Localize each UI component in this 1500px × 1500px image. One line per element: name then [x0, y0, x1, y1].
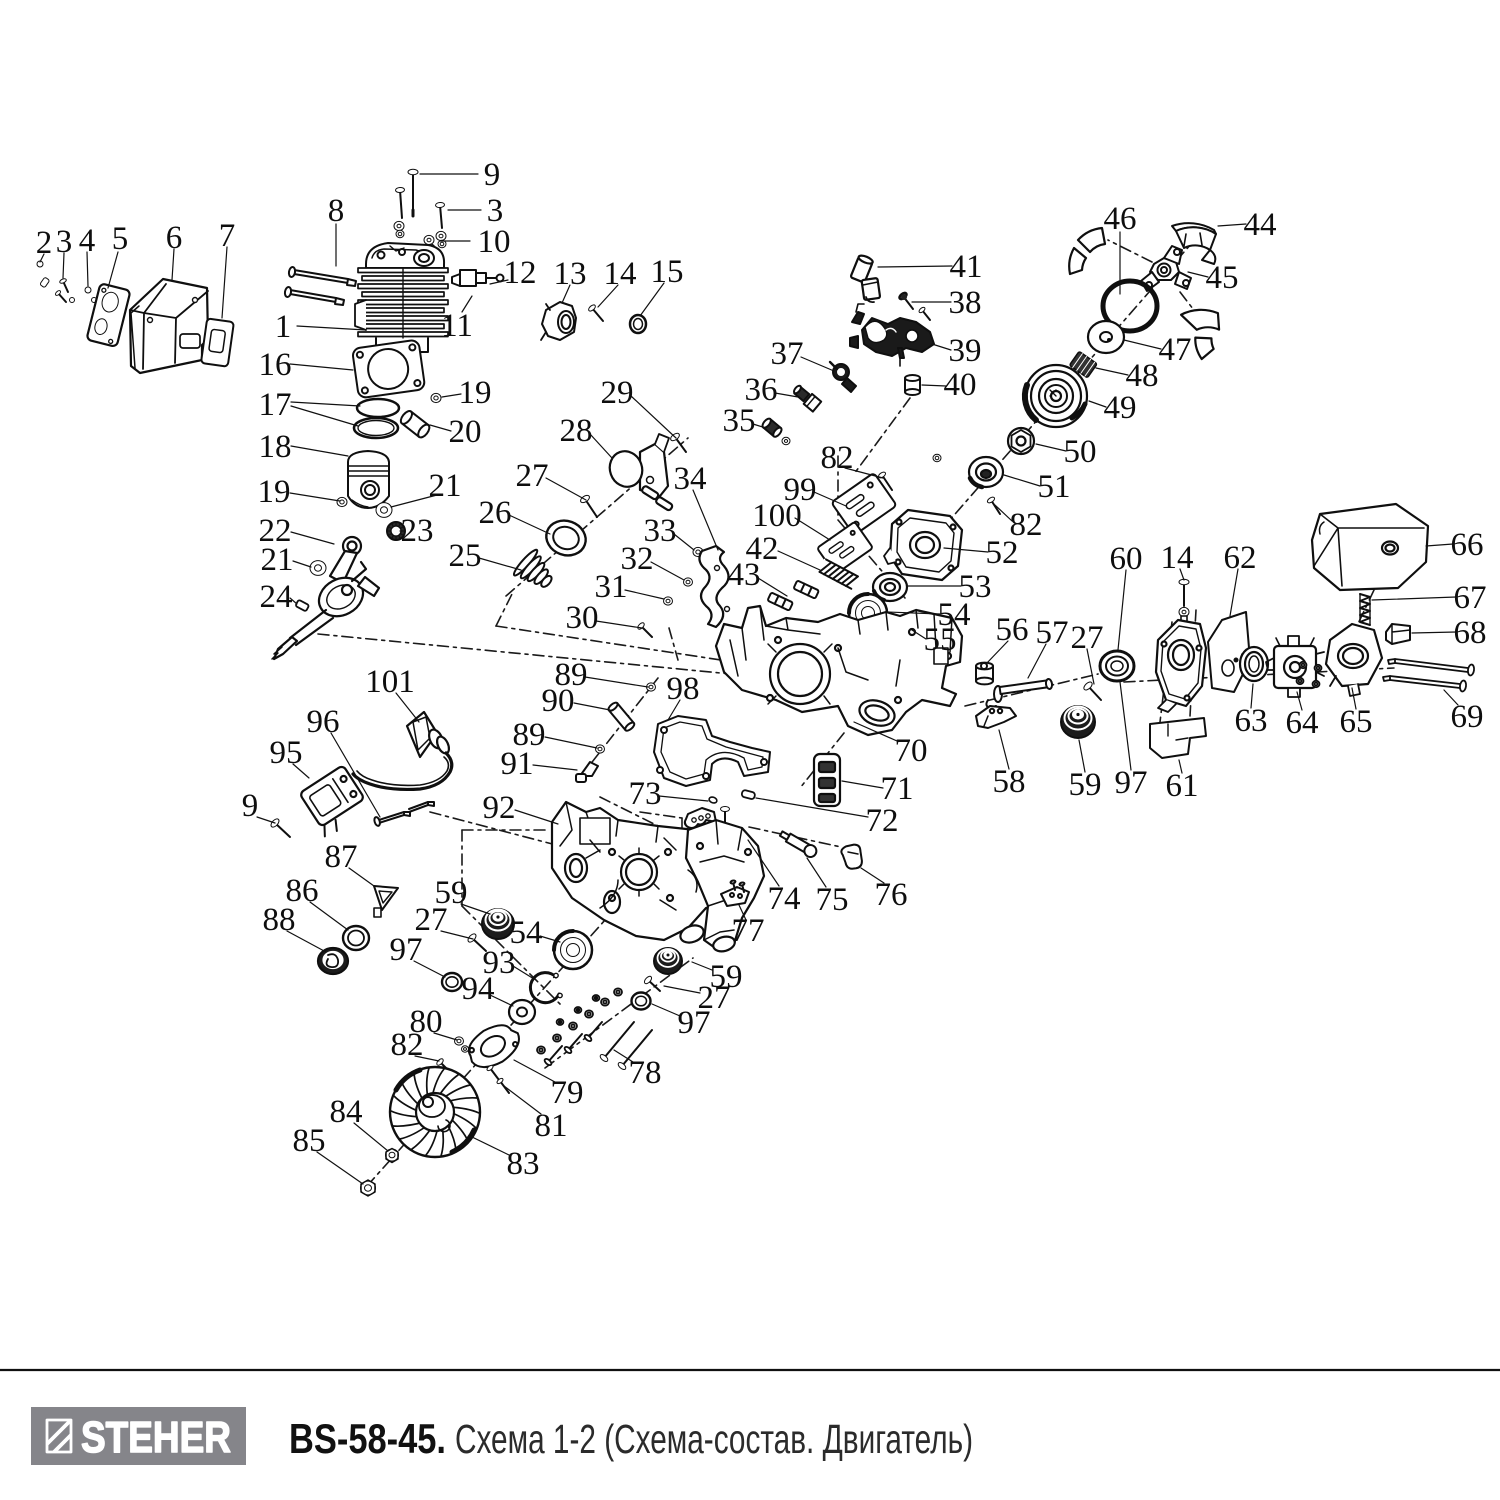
svg-text:14: 14: [1161, 540, 1194, 576]
svg-text:64: 64: [1286, 705, 1319, 741]
svg-text:29: 29: [601, 375, 634, 411]
svg-text:78: 78: [629, 1055, 662, 1091]
svg-text:75: 75: [816, 882, 849, 918]
svg-text:39: 39: [949, 333, 982, 369]
svg-text:Схема 1-2 (Схема-состав. Двига: Схема 1-2 (Схема-состав. Двигатель): [455, 1416, 973, 1462]
svg-text:36: 36: [745, 372, 778, 408]
svg-text:81: 81: [535, 1108, 568, 1144]
svg-text:28: 28: [560, 413, 593, 449]
svg-text:67: 67: [1454, 580, 1487, 616]
svg-text:2: 2: [36, 225, 53, 261]
svg-text:96: 96: [307, 704, 340, 740]
svg-text:18: 18: [259, 429, 292, 465]
svg-text:57: 57: [1036, 615, 1069, 651]
svg-text:97: 97: [1115, 765, 1148, 801]
svg-text:45: 45: [1206, 260, 1239, 296]
svg-text:27: 27: [516, 458, 549, 494]
svg-text:90: 90: [542, 683, 575, 719]
svg-text:1: 1: [275, 309, 292, 345]
svg-text:92: 92: [483, 790, 516, 826]
svg-text:71: 71: [881, 771, 914, 807]
svg-text:15: 15: [651, 254, 684, 290]
svg-text:65: 65: [1340, 704, 1373, 740]
svg-text:94: 94: [462, 971, 495, 1007]
svg-text:19: 19: [459, 375, 492, 411]
svg-text:58: 58: [993, 764, 1026, 800]
svg-text:BS-58-45.: BS-58-45.: [289, 1415, 446, 1462]
svg-text:16: 16: [259, 347, 292, 383]
svg-text:7: 7: [219, 218, 236, 254]
svg-text:73: 73: [629, 776, 662, 812]
svg-text:101: 101: [365, 664, 415, 700]
svg-text:69: 69: [1451, 699, 1484, 735]
svg-text:38: 38: [949, 285, 982, 321]
svg-text:76: 76: [875, 877, 908, 913]
svg-text:74: 74: [768, 881, 801, 917]
svg-text:91: 91: [501, 746, 534, 782]
svg-text:66: 66: [1451, 527, 1484, 563]
svg-text:6: 6: [166, 220, 183, 256]
svg-text:63: 63: [1235, 703, 1268, 739]
svg-text:8: 8: [328, 193, 345, 229]
svg-text:52: 52: [986, 535, 1019, 571]
svg-text:49: 49: [1104, 390, 1137, 426]
svg-text:21: 21: [261, 542, 294, 578]
svg-text:82: 82: [391, 1027, 424, 1063]
svg-text:84: 84: [330, 1094, 363, 1130]
svg-text:60: 60: [1110, 541, 1143, 577]
svg-text:35: 35: [723, 403, 756, 439]
svg-text:40: 40: [944, 367, 977, 403]
svg-text:STEHER: STEHER: [81, 1413, 231, 1462]
svg-text:87: 87: [325, 839, 358, 875]
svg-text:34: 34: [674, 461, 707, 497]
svg-text:31: 31: [595, 569, 628, 605]
svg-text:25: 25: [449, 538, 482, 574]
svg-text:27: 27: [1071, 620, 1104, 656]
svg-text:88: 88: [263, 902, 296, 938]
svg-text:83: 83: [507, 1146, 540, 1182]
svg-text:5: 5: [112, 221, 129, 257]
svg-text:46: 46: [1104, 201, 1137, 237]
svg-text:43: 43: [728, 557, 761, 593]
svg-text:59: 59: [1069, 767, 1102, 803]
svg-text:26: 26: [479, 495, 512, 531]
svg-text:14: 14: [604, 256, 637, 292]
svg-text:17: 17: [259, 387, 292, 423]
svg-text:50: 50: [1064, 434, 1097, 470]
svg-text:97: 97: [678, 1005, 711, 1041]
svg-text:12: 12: [504, 255, 537, 291]
svg-text:24: 24: [260, 579, 293, 615]
svg-text:85: 85: [293, 1123, 326, 1159]
svg-text:9: 9: [242, 788, 259, 824]
svg-text:19: 19: [258, 474, 291, 510]
svg-text:3: 3: [56, 224, 73, 260]
svg-text:9: 9: [484, 157, 501, 193]
svg-text:48: 48: [1126, 358, 1159, 394]
svg-text:61: 61: [1166, 768, 1199, 804]
svg-text:97: 97: [390, 932, 423, 968]
svg-text:79: 79: [551, 1075, 584, 1111]
svg-text:98: 98: [667, 671, 700, 707]
svg-text:47: 47: [1159, 332, 1192, 368]
svg-text:77: 77: [732, 913, 765, 949]
svg-text:37: 37: [771, 336, 804, 372]
svg-text:72: 72: [866, 803, 899, 839]
svg-text:55: 55: [924, 622, 957, 658]
svg-text:62: 62: [1224, 540, 1257, 576]
svg-text:44: 44: [1244, 207, 1277, 243]
svg-text:13: 13: [554, 256, 587, 292]
svg-text:4: 4: [79, 223, 96, 259]
svg-text:100: 100: [752, 498, 802, 534]
svg-text:51: 51: [1038, 469, 1071, 505]
svg-text:23: 23: [401, 513, 434, 549]
svg-text:70: 70: [895, 733, 928, 769]
svg-text:68: 68: [1454, 615, 1487, 651]
svg-text:82: 82: [821, 440, 854, 476]
svg-text:95: 95: [270, 735, 303, 771]
svg-text:20: 20: [449, 414, 482, 450]
svg-text:11: 11: [441, 308, 473, 344]
svg-text:30: 30: [566, 600, 599, 636]
svg-text:41: 41: [950, 249, 983, 285]
svg-text:21: 21: [429, 468, 462, 504]
svg-text:56: 56: [996, 612, 1029, 648]
